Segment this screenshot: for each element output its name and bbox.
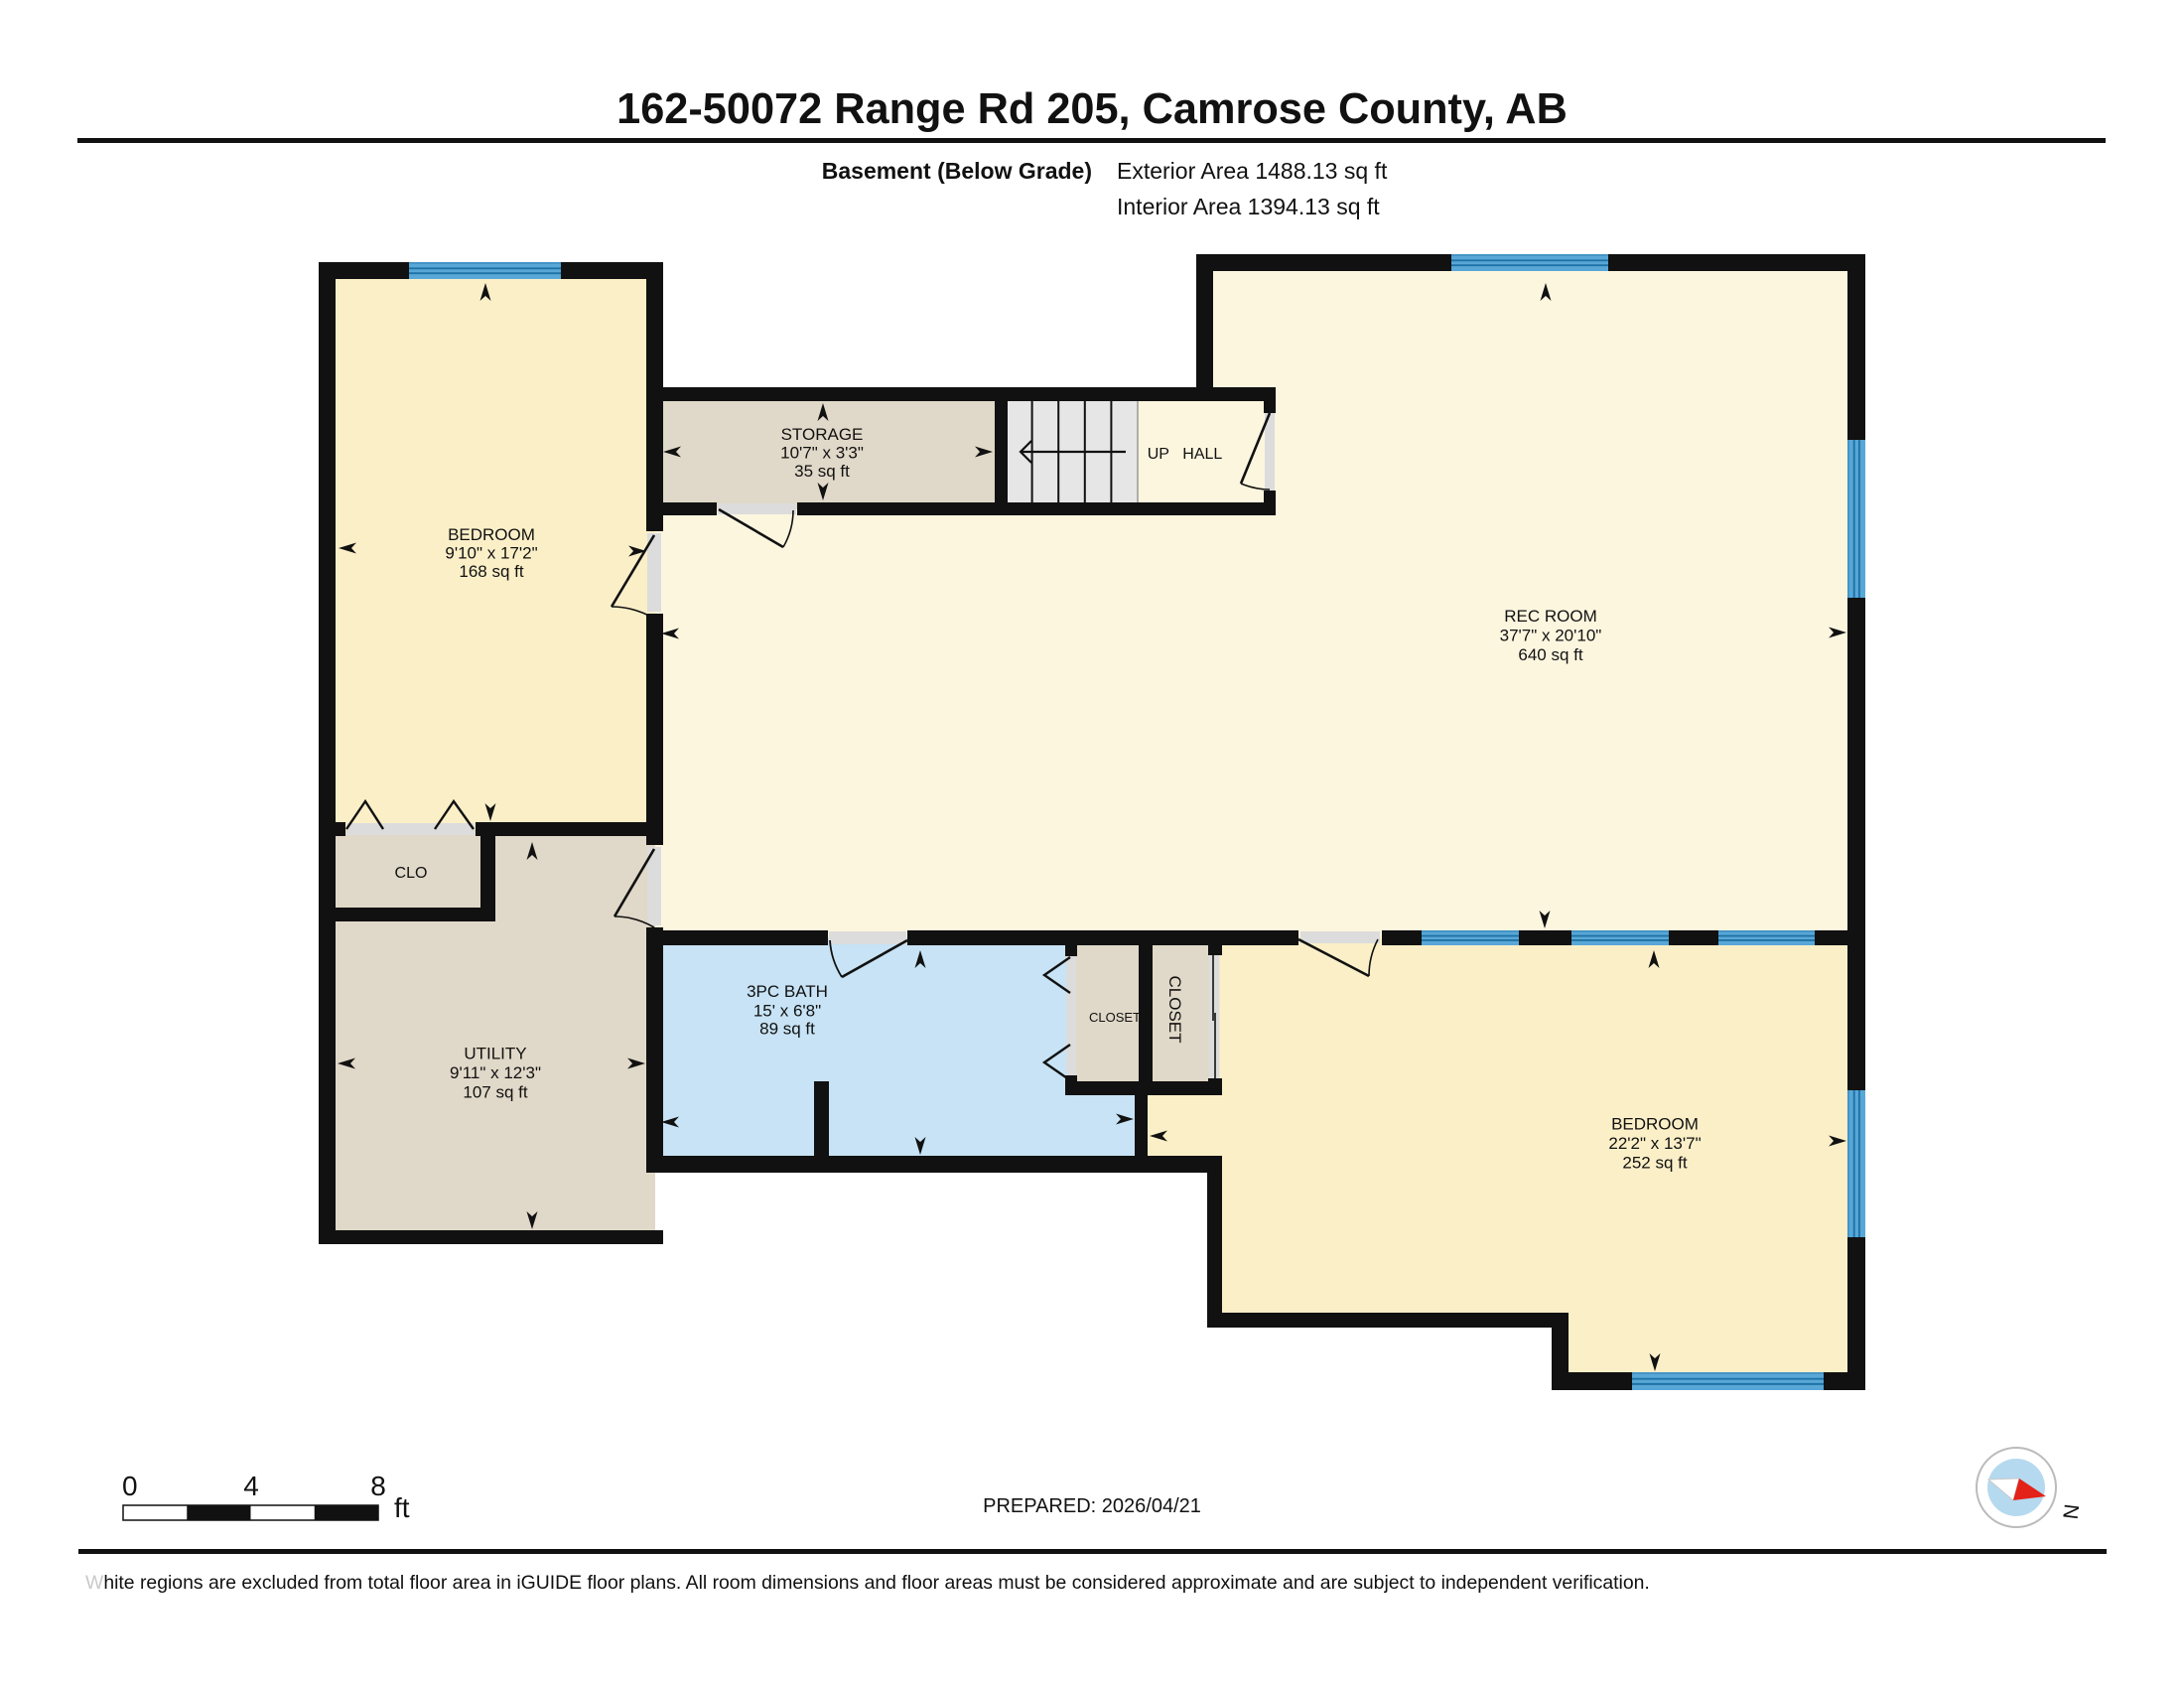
svg-text:162-50072 Range Rd 205, Camros: 162-50072 Range Rd 205, Camrose County, … xyxy=(616,85,1568,133)
svg-text:Interior Area 1394.13 sq ft: Interior Area 1394.13 sq ft xyxy=(1117,194,1380,219)
svg-text:UP HALL: UP HALL xyxy=(1148,446,1223,463)
svg-text:168 sq ft: 168 sq ft xyxy=(459,562,523,581)
svg-text:35 sq ft: 35 sq ft xyxy=(794,462,850,481)
svg-text:107 sq ft: 107 sq ft xyxy=(463,1083,527,1102)
svg-text:BEDROOM: BEDROOM xyxy=(448,525,535,544)
svg-text:Basement (Below Grade): Basement (Below Grade) xyxy=(822,158,1092,184)
svg-text:CLOSET: CLOSET xyxy=(1089,1010,1141,1025)
svg-text:N: N xyxy=(2058,1502,2083,1520)
svg-text:ft: ft xyxy=(394,1492,410,1523)
svg-text:CLOSET: CLOSET xyxy=(1165,975,1184,1043)
svg-text:4: 4 xyxy=(243,1471,259,1501)
svg-text:PREPARED: 2026/04/21: PREPARED: 2026/04/21 xyxy=(983,1495,1201,1517)
svg-text:640 sq ft: 640 sq ft xyxy=(1518,645,1582,664)
svg-text:CLO: CLO xyxy=(395,865,428,882)
svg-text:89 sq ft: 89 sq ft xyxy=(759,1020,815,1039)
svg-text:10'7" x 3'3": 10'7" x 3'3" xyxy=(780,444,864,463)
svg-text:White regions are excluded fro: White regions are excluded from total fl… xyxy=(85,1572,1650,1594)
svg-text:9'10" x 17'2": 9'10" x 17'2" xyxy=(445,544,537,563)
svg-text:BEDROOM: BEDROOM xyxy=(1611,1115,1699,1134)
svg-text:REC ROOM: REC ROOM xyxy=(1504,607,1597,626)
svg-text:252 sq ft: 252 sq ft xyxy=(1622,1154,1687,1173)
svg-text:22'2" x 13'7": 22'2" x 13'7" xyxy=(1608,1134,1701,1153)
svg-text:8: 8 xyxy=(370,1471,386,1501)
svg-text:15' x 6'8": 15' x 6'8" xyxy=(753,1002,821,1021)
svg-text:37'7" x 20'10": 37'7" x 20'10" xyxy=(1500,627,1602,645)
svg-text:STORAGE: STORAGE xyxy=(781,425,864,444)
svg-text:3PC BATH: 3PC BATH xyxy=(747,982,828,1001)
svg-text:0: 0 xyxy=(122,1471,138,1501)
svg-text:Exterior Area 1488.13 sq ft: Exterior Area 1488.13 sq ft xyxy=(1117,158,1388,184)
svg-text:UTILITY: UTILITY xyxy=(464,1045,526,1063)
svg-text:9'11" x 12'3": 9'11" x 12'3" xyxy=(450,1063,541,1082)
